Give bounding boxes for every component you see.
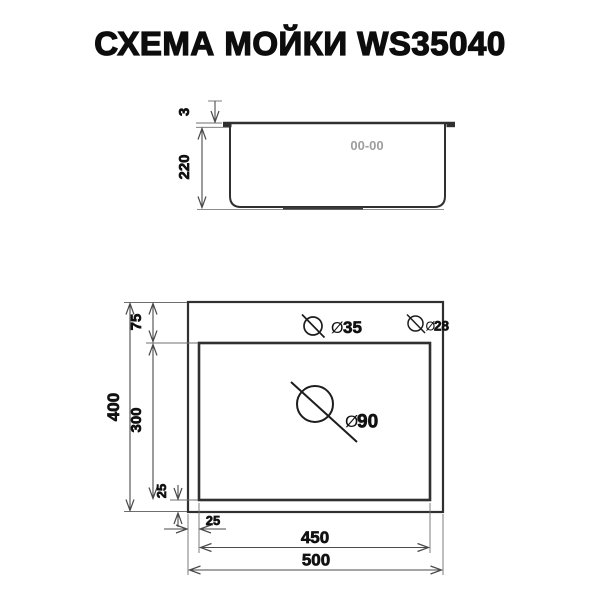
dim-label-bowl-side-margin: 25 [206, 513, 220, 528]
dim-label-bowl-width: 450 [301, 528, 329, 547]
top-view: Ø 35 Ø 28 Ø 90 [104, 302, 450, 575]
dim-label-deck-offset: 75 [128, 314, 145, 331]
sink-technical-drawing: 00-00 3 220 Ø 35 [0, 0, 600, 600]
dimension-rim-thickness: 3 [176, 101, 229, 127]
sink-bowl-section-outline [230, 124, 445, 207]
dim-label-faucet-hole: 35 [343, 318, 362, 337]
faucet-hole-diameter-symbol: Ø [331, 320, 343, 337]
dimension-bowl-side-margin: 25 [164, 513, 226, 529]
dim-label-overall-depth: 400 [104, 393, 123, 421]
dim-label-bowl-bottom-margin: 25 [154, 484, 169, 498]
dim-label-accessory-hole: 28 [434, 319, 450, 334]
diagram-canvas: СХЕМА МОЙКИ WS35040 00-00 [0, 0, 600, 600]
dim-label-drain-hole: 90 [357, 412, 378, 433]
dimension-overall-width: 500 [190, 551, 442, 571]
dimension-bowl-bottom-margin: 25 [154, 484, 178, 527]
accessory-hole-symbol [407, 315, 425, 334]
dim-label-overall-width: 500 [302, 551, 330, 570]
side-view: 00-00 3 220 [176, 101, 455, 210]
top-view-outer-rim [188, 302, 443, 512]
brand-logo-mark: 00-00 [350, 138, 383, 153]
dimension-depth: 220 [176, 129, 202, 208]
dimension-bowl-width: 450 [201, 528, 429, 548]
faucet-hole-symbol [302, 315, 325, 338]
sink-rim-right-tab [447, 123, 456, 127]
dim-label-bowl-depth: 300 [128, 407, 145, 432]
dim-label-depth: 220 [176, 154, 193, 179]
dimension-deck-offset: 75 [128, 304, 153, 342]
dimension-bowl-depth: 300 [128, 345, 153, 499]
side-view-sink-body [197, 123, 455, 210]
dimension-overall-depth: 400 [104, 304, 130, 511]
dim-label-rim-thickness: 3 [176, 108, 193, 116]
